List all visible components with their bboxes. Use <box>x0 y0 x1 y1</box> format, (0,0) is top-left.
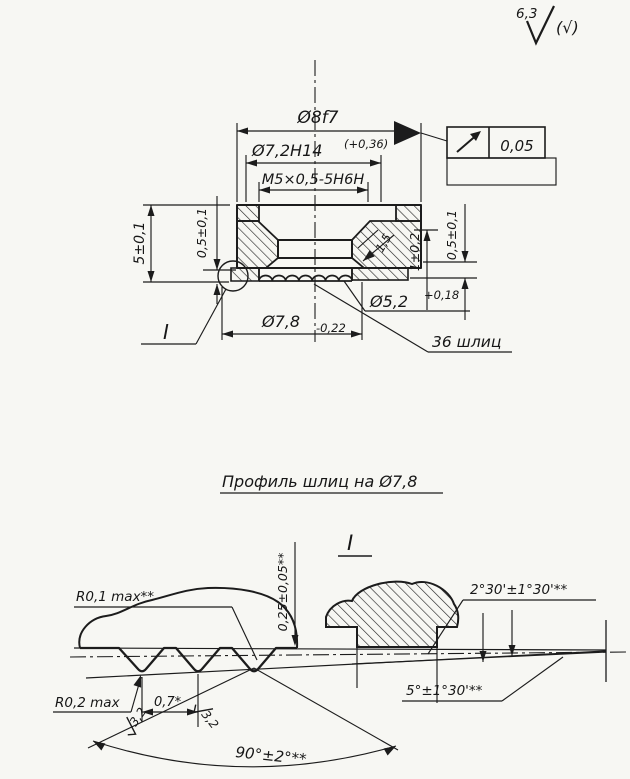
dim-profile-angle: 90°±2°** <box>235 743 308 768</box>
detail-title: Профиль шлиц на Ø7,8 <box>222 472 417 491</box>
engineering-drawing: 6,3 (√) <box>0 0 630 779</box>
left-lip-hatch <box>237 205 259 221</box>
dim-pitch: 0,7* <box>154 695 182 710</box>
dim-step: 1±0,2 <box>407 233 422 271</box>
drawing-sheet: 6,3 (√) <box>0 0 630 779</box>
dim-spline-minor: Ø5,2 <box>369 292 408 311</box>
runout-tolerance-frame: 0,05 <box>447 127 556 185</box>
serrated-face <box>259 268 352 281</box>
dim-counterbore-tol: (+0,36) <box>344 137 388 151</box>
detail-label: I <box>347 531 353 555</box>
right-tab <box>352 268 408 280</box>
tooth-profile <box>80 648 297 671</box>
dim-spline-major: Ø7,8 <box>261 312 300 331</box>
dim-tip-radius: R0,2 max <box>55 695 121 711</box>
dim-angle-taper: 5°±1°30'** <box>406 683 483 699</box>
dim-profile-height: 0,25±0,05** <box>275 553 290 632</box>
datum-triangle-icon <box>394 121 421 145</box>
crest-reference-line <box>74 648 606 650</box>
svg-text:3,2: 3,2 <box>127 705 149 729</box>
general-roughness-note: 6,3 (√) <box>516 6 579 43</box>
dim-lip-right: 0,5±0,1 <box>444 210 459 260</box>
dim-spline-minor-tol: +0,18 <box>424 288 459 302</box>
roughness-alt: (√) <box>556 18 579 37</box>
dim-height: 5±0,1 <box>132 222 148 265</box>
flank-roughness-left: 3,2 <box>119 704 150 738</box>
detail-callout-label: I <box>163 320 169 344</box>
dim-outer-diameter: Ø8f7 <box>297 108 339 128</box>
left-wall-hatch <box>237 221 278 268</box>
dim-angle-tip: 2°30'±1°30'** <box>470 582 568 598</box>
runout-value: 0,05 <box>500 137 533 155</box>
dim-thread: M5×0,5-5H6H <box>262 172 365 188</box>
dim-spline-major-tol: -0,22 <box>316 321 346 335</box>
flank-roughness-right: 3,2 <box>191 698 223 732</box>
right-lip-hatch <box>396 205 421 221</box>
spline-count-note: 36 шлиц <box>432 333 501 351</box>
dim-root-radius: R0,1 max** <box>76 589 154 605</box>
runout-symbol-icon <box>457 131 481 152</box>
roughness-value: 6,3 <box>516 6 537 22</box>
dim-lip-left: 0,5±0,1 <box>194 208 209 258</box>
dim-counterbore: Ø7,2H14 <box>251 141 322 160</box>
spline-profile-detail-view: Профиль шлиц на Ø7,8 I 0,25±0,05** R0,1 … <box>53 472 626 768</box>
main-section-view: Ø8f7 Ø7,2H14 (+0,36) M5×0,5-5H6H 0,05 <box>132 60 556 352</box>
